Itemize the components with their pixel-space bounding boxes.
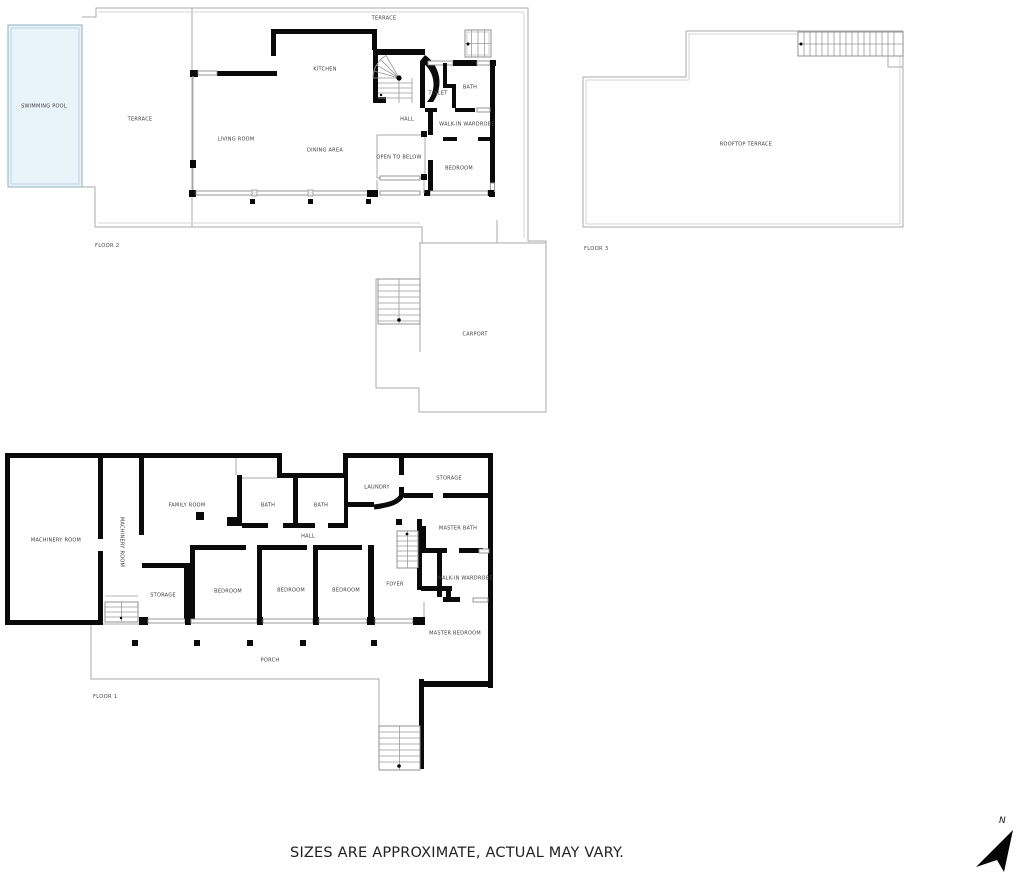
room-label-dining-area: DINING AREA — [307, 149, 343, 154]
room-label-wardrobe-f1: WALK-IN WARDROBE — [437, 577, 493, 582]
floor1-plan — [5, 453, 493, 770]
room-label-master-bedroom: MASTER BEDROOM — [429, 632, 481, 637]
floor3-title: FLOOR 3 — [584, 247, 609, 252]
room-label-swimming-pool: SWIMMING POOL — [21, 105, 67, 110]
room-label-open-to-below: OPEN TO BELOW — [376, 156, 421, 161]
terrace-stairs — [465, 30, 491, 57]
carport-stairs — [378, 279, 420, 324]
north-label: N — [999, 816, 1006, 826]
north-arrow-icon — [976, 830, 1013, 872]
room-label-bedroom-2: BEDROOM — [277, 589, 305, 594]
corridor-stairs — [105, 596, 138, 622]
room-label-bedroom-1: BEDROOM — [214, 590, 242, 595]
room-label-terrace-top: TERRACE — [372, 17, 397, 22]
floor2-title: FLOOR 2 — [95, 244, 120, 249]
entry-stairs — [379, 726, 420, 770]
room-label-hall-f1: HALL — [301, 535, 315, 540]
floor2-plan — [8, 8, 546, 412]
room-label-family-room: FAMILY ROOM — [169, 504, 206, 509]
room-label-porch: PORCH — [261, 659, 280, 664]
room-label-bedroom-f2: BEDROOM — [445, 167, 473, 172]
room-label-bath-2: BATH — [314, 504, 328, 509]
floor3-plan — [583, 31, 903, 227]
room-label-hall-f2: HALL — [400, 118, 414, 123]
room-label-machinery-room-vertical: MACHINERY ROOM — [119, 517, 124, 567]
disclaimer-caption: SIZES ARE APPROXIMATE, ACTUAL MAY VARY. — [290, 845, 624, 861]
floor1-title: FLOOR 1 — [93, 695, 118, 700]
room-label-bedroom-3: BEDROOM — [332, 589, 360, 594]
room-label-kitchen: KITCHEN — [313, 68, 336, 73]
floor1-walls — [5, 453, 493, 769]
room-label-foyer: FOYER — [386, 583, 403, 588]
room-label-bath-f2: BATH — [463, 86, 477, 91]
floorplan-sheet: SWIMMING POOL TERRACE TERRACE LIVING ROO… — [0, 0, 1024, 874]
room-label-carport: CARPORT — [462, 333, 487, 338]
room-label-rooftop-terrace: ROOFTOP TERRACE — [720, 143, 772, 148]
floor2-walls — [189, 29, 496, 204]
room-label-living-room: LIVING ROOM — [218, 138, 255, 143]
room-label-laundry: LAUNDRY — [364, 486, 390, 491]
room-label-machinery-room: MACHINERY ROOM — [31, 539, 81, 544]
room-label-toilet: TOILET — [429, 92, 448, 97]
room-label-master-bath: MASTER BATH — [439, 527, 477, 532]
floorplan-linework — [0, 0, 1024, 874]
room-label-storage-upper: STORAGE — [436, 477, 462, 482]
room-label-wardrobe-f2: WALK-IN WARDROBE — [439, 123, 495, 128]
room-label-bath-1: BATH — [261, 504, 275, 509]
rooftop-stairs — [798, 32, 903, 67]
room-label-storage-lower: STORAGE — [150, 594, 176, 599]
porch-outline — [91, 625, 379, 770]
room-label-terrace-left: TERRACE — [128, 118, 153, 123]
